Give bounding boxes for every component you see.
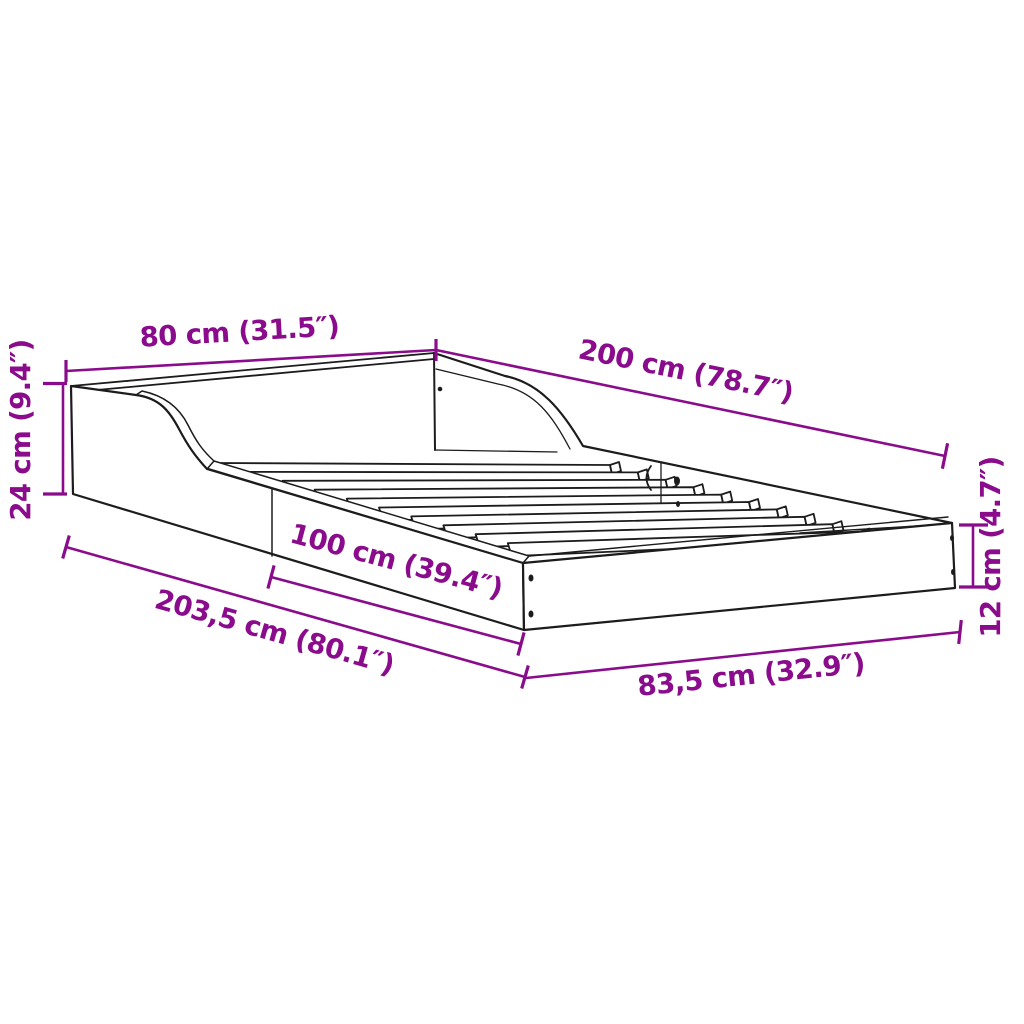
headboard-right-edge: [434, 353, 435, 450]
dimension-total-width: 83,5 cm (32.9″): [526, 620, 961, 703]
dimension-tick: [959, 620, 962, 644]
bed-frame-drawing: [71, 353, 955, 630]
dimension-label-headboard-height: 24 cm (9.4″): [5, 339, 37, 520]
dimension-label-side-rail-height: 12 cm (4.7″): [975, 456, 1007, 637]
dimension-label-bed-length: 200 cm (78.7″): [576, 333, 796, 409]
screw-icon: [529, 575, 534, 582]
dimension-headboard-height: 24 cm (9.4″): [5, 339, 67, 520]
dimension-label-headboard-width: 80 cm (31.5″): [139, 310, 340, 353]
screw-hole: [438, 387, 443, 392]
dimension-label-total-width: 83,5 cm (32.9″): [636, 647, 866, 703]
dimension-side-rail-height: 12 cm (4.7″): [959, 456, 1007, 637]
headboard-top-strip: [71, 353, 434, 392]
screw-icon: [950, 535, 954, 541]
screw-icon: [676, 501, 680, 507]
product-dimension-image: 80 cm (31.5″) 200 cm (78.7″) 24 cm (9.4″…: [0, 0, 1024, 1024]
screw-icon: [951, 569, 955, 575]
screw-icon: [674, 477, 680, 486]
bed-frame-dimension-diagram: 80 cm (31.5″) 200 cm (78.7″) 24 cm (9.4″…: [0, 0, 1024, 1024]
dimension-label-total-length: 203,5 cm (80.1″): [151, 583, 397, 681]
screw-icon: [529, 611, 534, 618]
